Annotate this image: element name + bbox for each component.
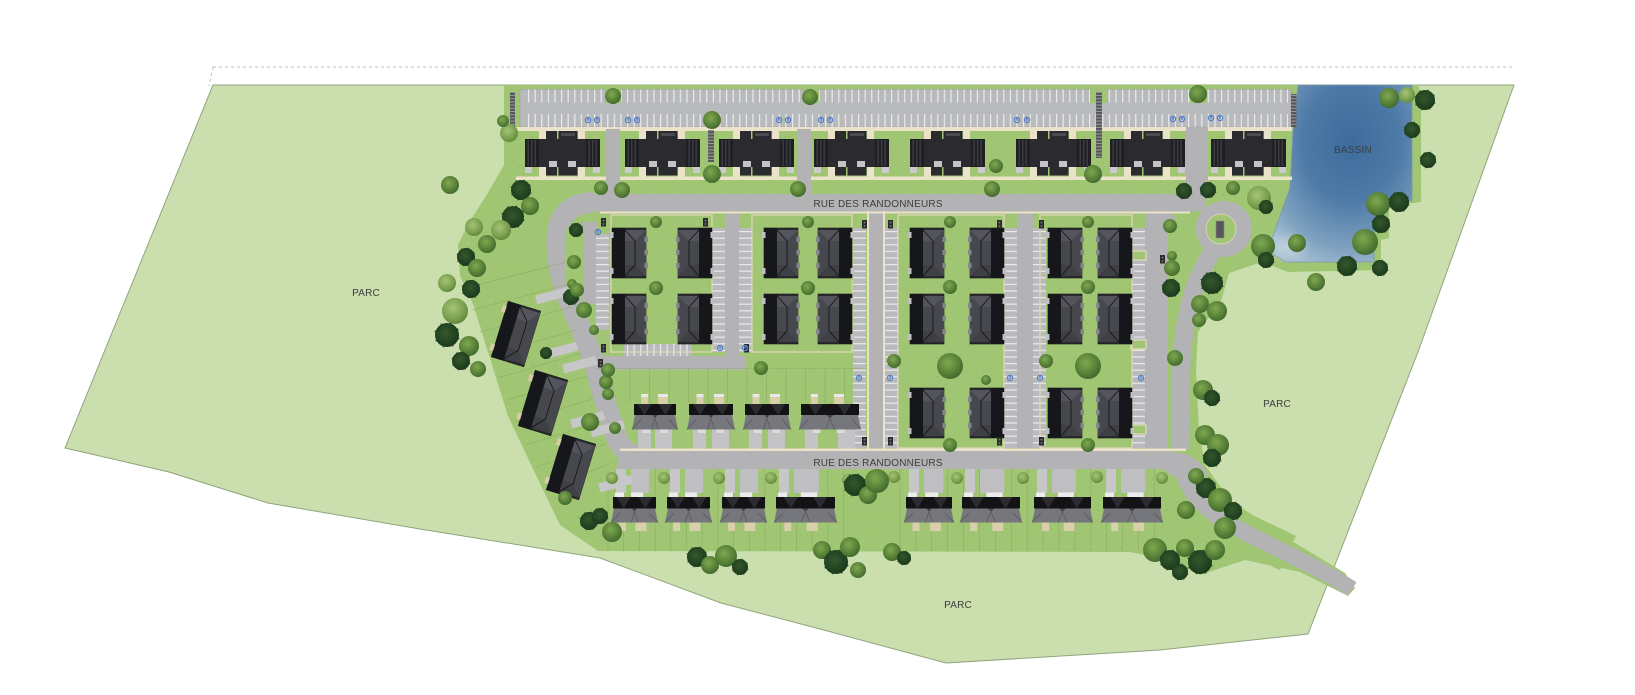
- svg-text:RUE DES RANDONNEURS: RUE DES RANDONNEURS: [813, 458, 943, 469]
- svg-text:BASSIN: BASSIN: [1334, 145, 1372, 156]
- svg-text:RUE DES RANDONNEURS: RUE DES RANDONNEURS: [813, 199, 943, 210]
- svg-text:PARC: PARC: [1263, 399, 1291, 410]
- svg-text:PARC: PARC: [352, 288, 380, 299]
- svg-text:PARC: PARC: [944, 600, 972, 611]
